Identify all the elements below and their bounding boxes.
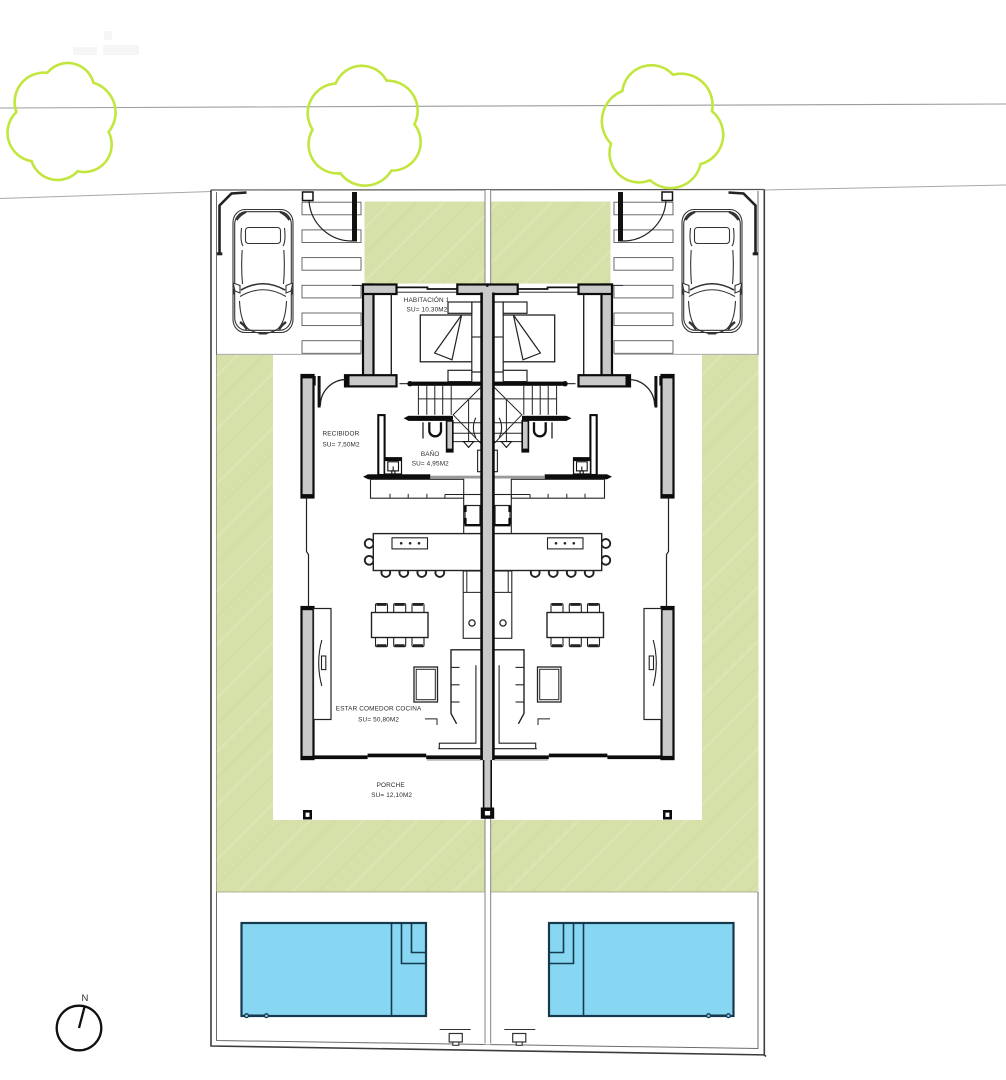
svg-text:RECIBIDOR: RECIBIDOR bbox=[323, 431, 360, 438]
svg-text:SU= 50,80M2: SU= 50,80M2 bbox=[358, 716, 399, 723]
svg-text:SU= 12,10M2: SU= 12,10M2 bbox=[371, 792, 412, 799]
svg-text:SU= 4,95M2: SU= 4,95M2 bbox=[412, 460, 449, 467]
svg-text:BAÑO: BAÑO bbox=[421, 449, 440, 458]
svg-text:SU= 10,30M2: SU= 10,30M2 bbox=[407, 306, 448, 313]
svg-text:PORCHE: PORCHE bbox=[377, 782, 405, 789]
svg-text:N: N bbox=[82, 993, 89, 1004]
svg-text:SU= 7,50M2: SU= 7,50M2 bbox=[323, 441, 360, 448]
svg-text:ESTAR COMEDOR COCINA: ESTAR COMEDOR COCINA bbox=[336, 706, 422, 713]
svg-text:HABITACIÓN 1: HABITACIÓN 1 bbox=[404, 295, 450, 304]
